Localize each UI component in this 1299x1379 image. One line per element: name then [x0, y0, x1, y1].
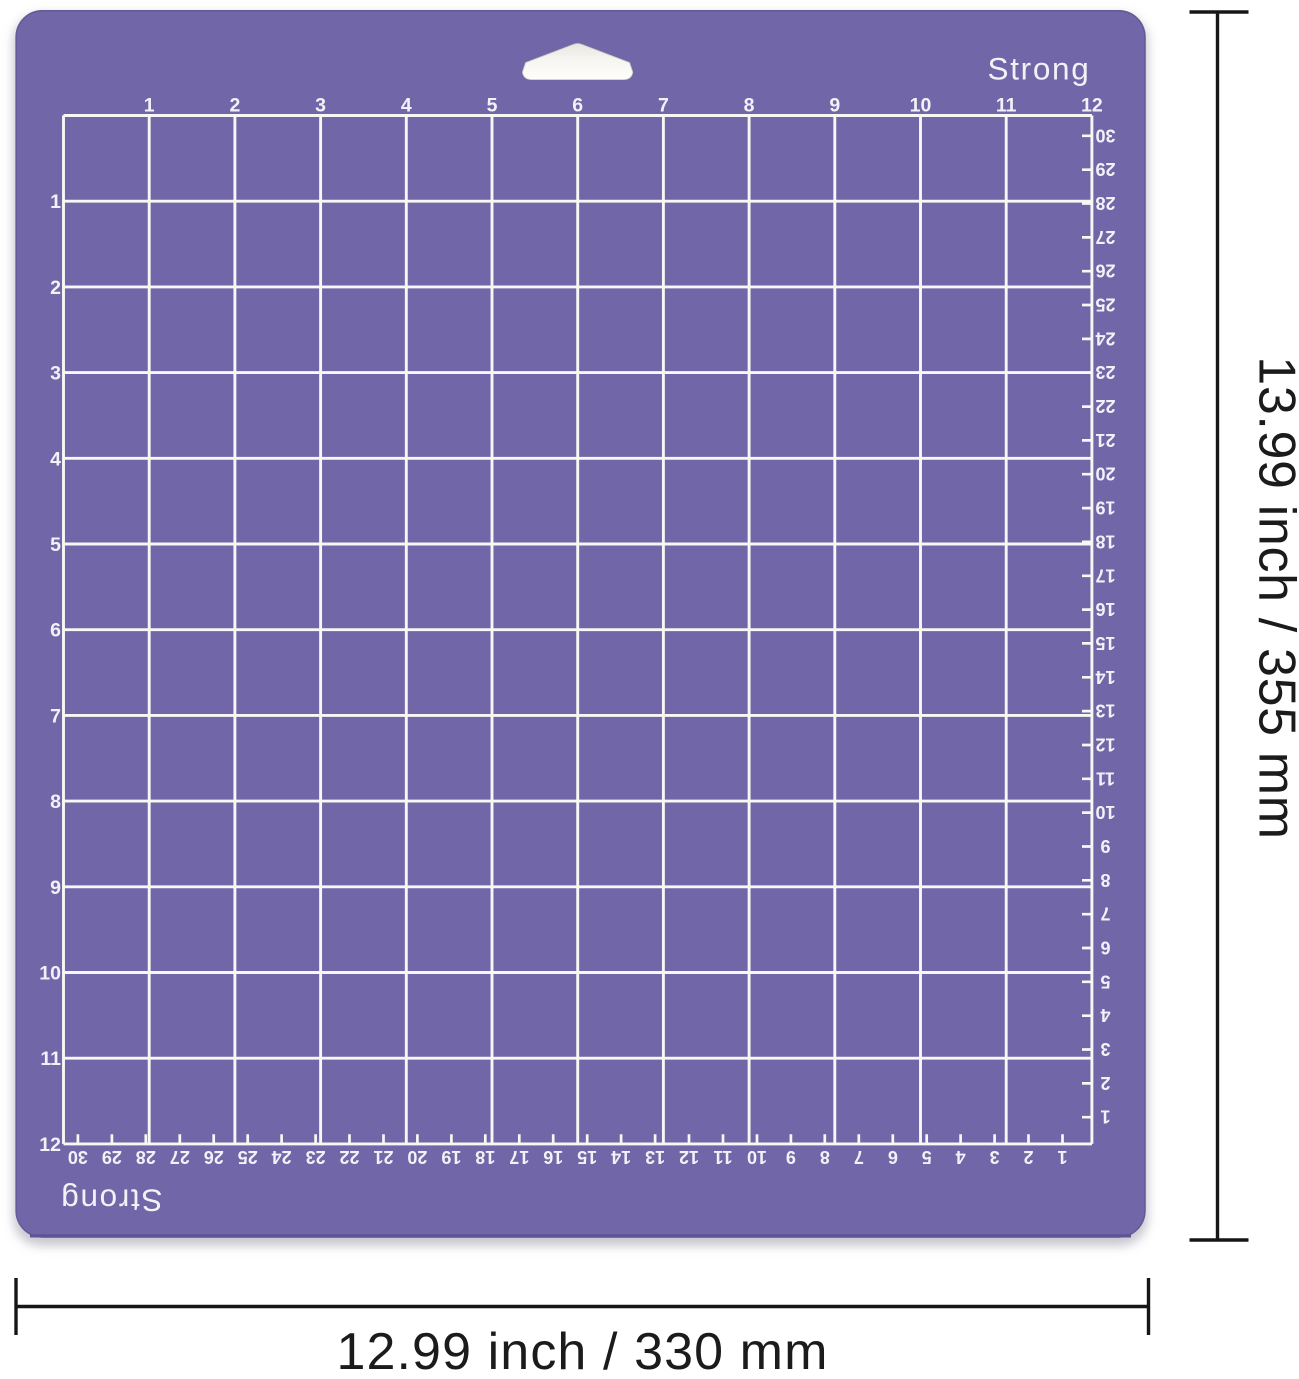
svg-text:3: 3 [50, 363, 61, 385]
svg-text:Strong: Strong [987, 50, 1090, 86]
svg-text:14: 14 [611, 1147, 631, 1167]
svg-text:22: 22 [339, 1147, 359, 1167]
svg-text:8: 8 [744, 95, 755, 117]
svg-text:20: 20 [1095, 464, 1115, 484]
svg-text:20: 20 [407, 1147, 427, 1167]
svg-text:29: 29 [102, 1147, 122, 1167]
svg-text:9: 9 [786, 1147, 796, 1167]
svg-text:4: 4 [50, 448, 61, 470]
svg-text:3: 3 [990, 1147, 1000, 1167]
svg-text:11: 11 [713, 1147, 732, 1167]
svg-text:9: 9 [829, 95, 840, 117]
svg-text:5: 5 [487, 95, 498, 117]
svg-text:8: 8 [50, 791, 61, 813]
svg-text:30: 30 [68, 1147, 88, 1167]
svg-text:25: 25 [238, 1147, 258, 1167]
svg-text:6: 6 [50, 620, 61, 642]
svg-text:29: 29 [1095, 159, 1115, 179]
svg-text:6: 6 [888, 1147, 898, 1167]
svg-text:1: 1 [1100, 1107, 1110, 1127]
svg-text:26: 26 [204, 1147, 224, 1167]
svg-text:2: 2 [50, 277, 61, 299]
svg-text:24: 24 [1095, 328, 1115, 348]
svg-text:26: 26 [1095, 261, 1115, 281]
svg-text:3: 3 [315, 95, 326, 117]
svg-text:12: 12 [1081, 95, 1103, 117]
svg-text:13.99 inch / 355 mm: 13.99 inch / 355 mm [1247, 356, 1299, 840]
svg-text:14: 14 [1095, 667, 1115, 687]
svg-text:17: 17 [1095, 565, 1115, 585]
svg-text:5: 5 [50, 534, 61, 556]
svg-text:4: 4 [956, 1147, 966, 1167]
svg-text:10: 10 [1095, 802, 1115, 822]
svg-text:7: 7 [50, 705, 61, 727]
svg-text:6: 6 [1100, 938, 1110, 958]
svg-text:8: 8 [820, 1147, 830, 1167]
svg-text:6: 6 [572, 95, 583, 117]
svg-text:19: 19 [1095, 498, 1115, 518]
svg-text:18: 18 [1095, 531, 1115, 551]
svg-text:13: 13 [1095, 701, 1115, 721]
svg-text:28: 28 [136, 1147, 156, 1167]
svg-text:12: 12 [1095, 735, 1115, 755]
svg-text:23: 23 [306, 1147, 326, 1167]
svg-text:7: 7 [854, 1147, 864, 1167]
svg-text:21: 21 [1095, 430, 1115, 450]
svg-text:10: 10 [39, 963, 61, 985]
svg-text:15: 15 [1095, 633, 1115, 653]
svg-text:7: 7 [658, 95, 669, 117]
svg-text:10: 10 [910, 95, 932, 117]
svg-text:21: 21 [373, 1147, 393, 1167]
svg-text:25: 25 [1095, 295, 1115, 315]
svg-text:17: 17 [509, 1147, 529, 1167]
svg-text:11: 11 [1096, 768, 1115, 788]
svg-text:2: 2 [1023, 1147, 1033, 1167]
svg-text:12: 12 [39, 1134, 61, 1156]
svg-text:16: 16 [543, 1147, 563, 1167]
svg-text:24: 24 [272, 1147, 292, 1167]
svg-text:9: 9 [1100, 836, 1110, 856]
svg-text:12: 12 [679, 1147, 699, 1167]
svg-text:1: 1 [144, 95, 155, 117]
svg-text:4: 4 [1100, 1005, 1110, 1025]
svg-text:7: 7 [1100, 904, 1110, 924]
svg-text:27: 27 [1095, 227, 1115, 247]
svg-text:1: 1 [50, 191, 61, 213]
svg-text:2: 2 [1100, 1073, 1110, 1093]
svg-text:5: 5 [1100, 971, 1110, 991]
svg-text:4: 4 [401, 95, 412, 117]
svg-text:5: 5 [922, 1147, 932, 1167]
svg-text:27: 27 [170, 1147, 190, 1167]
svg-text:10: 10 [747, 1147, 767, 1167]
svg-text:19: 19 [441, 1147, 461, 1167]
svg-text:2: 2 [229, 95, 240, 117]
svg-text:9: 9 [50, 877, 61, 899]
svg-text:22: 22 [1095, 396, 1115, 416]
svg-text:1: 1 [1057, 1147, 1067, 1167]
svg-text:8: 8 [1100, 870, 1110, 890]
svg-text:3: 3 [1100, 1039, 1110, 1059]
svg-text:30: 30 [1095, 125, 1115, 145]
svg-text:Strong: Strong [59, 1183, 162, 1219]
svg-text:23: 23 [1095, 362, 1115, 382]
svg-text:12.99 inch / 330 mm: 12.99 inch / 330 mm [336, 1323, 828, 1374]
svg-text:11: 11 [996, 95, 1017, 117]
svg-text:11: 11 [40, 1048, 61, 1070]
svg-text:18: 18 [475, 1147, 495, 1167]
svg-text:16: 16 [1095, 599, 1115, 619]
svg-text:15: 15 [577, 1147, 597, 1167]
svg-text:13: 13 [645, 1147, 665, 1167]
svg-text:28: 28 [1095, 193, 1115, 213]
